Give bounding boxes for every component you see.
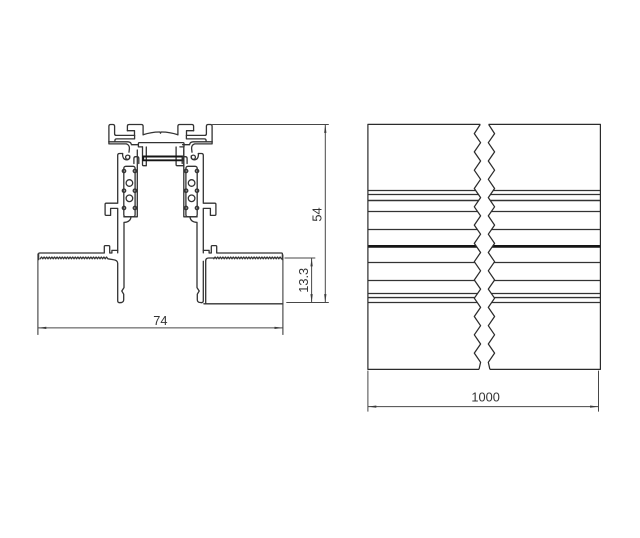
svg-text:13.3: 13.3 (296, 268, 311, 293)
svg-text:1000: 1000 (471, 390, 499, 405)
svg-text:54: 54 (310, 207, 325, 221)
svg-text:74: 74 (153, 313, 167, 328)
